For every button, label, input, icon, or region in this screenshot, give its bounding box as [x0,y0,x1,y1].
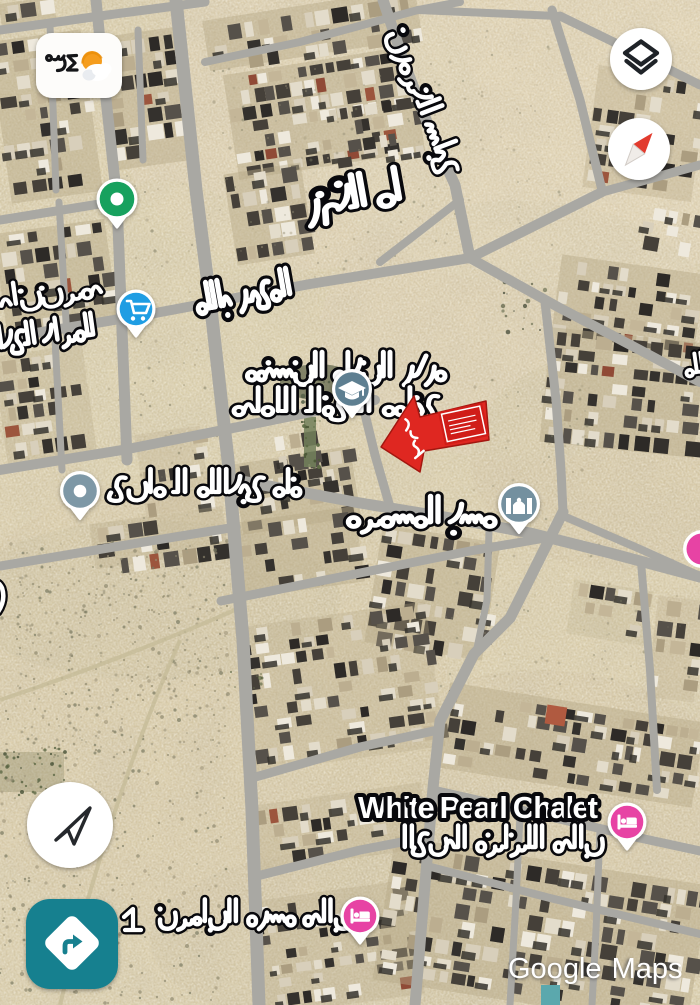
svg-text:Google Maps: Google Maps [508,953,683,985]
svg-text:White Pearl Chalet: White Pearl Chalet [358,790,598,825]
